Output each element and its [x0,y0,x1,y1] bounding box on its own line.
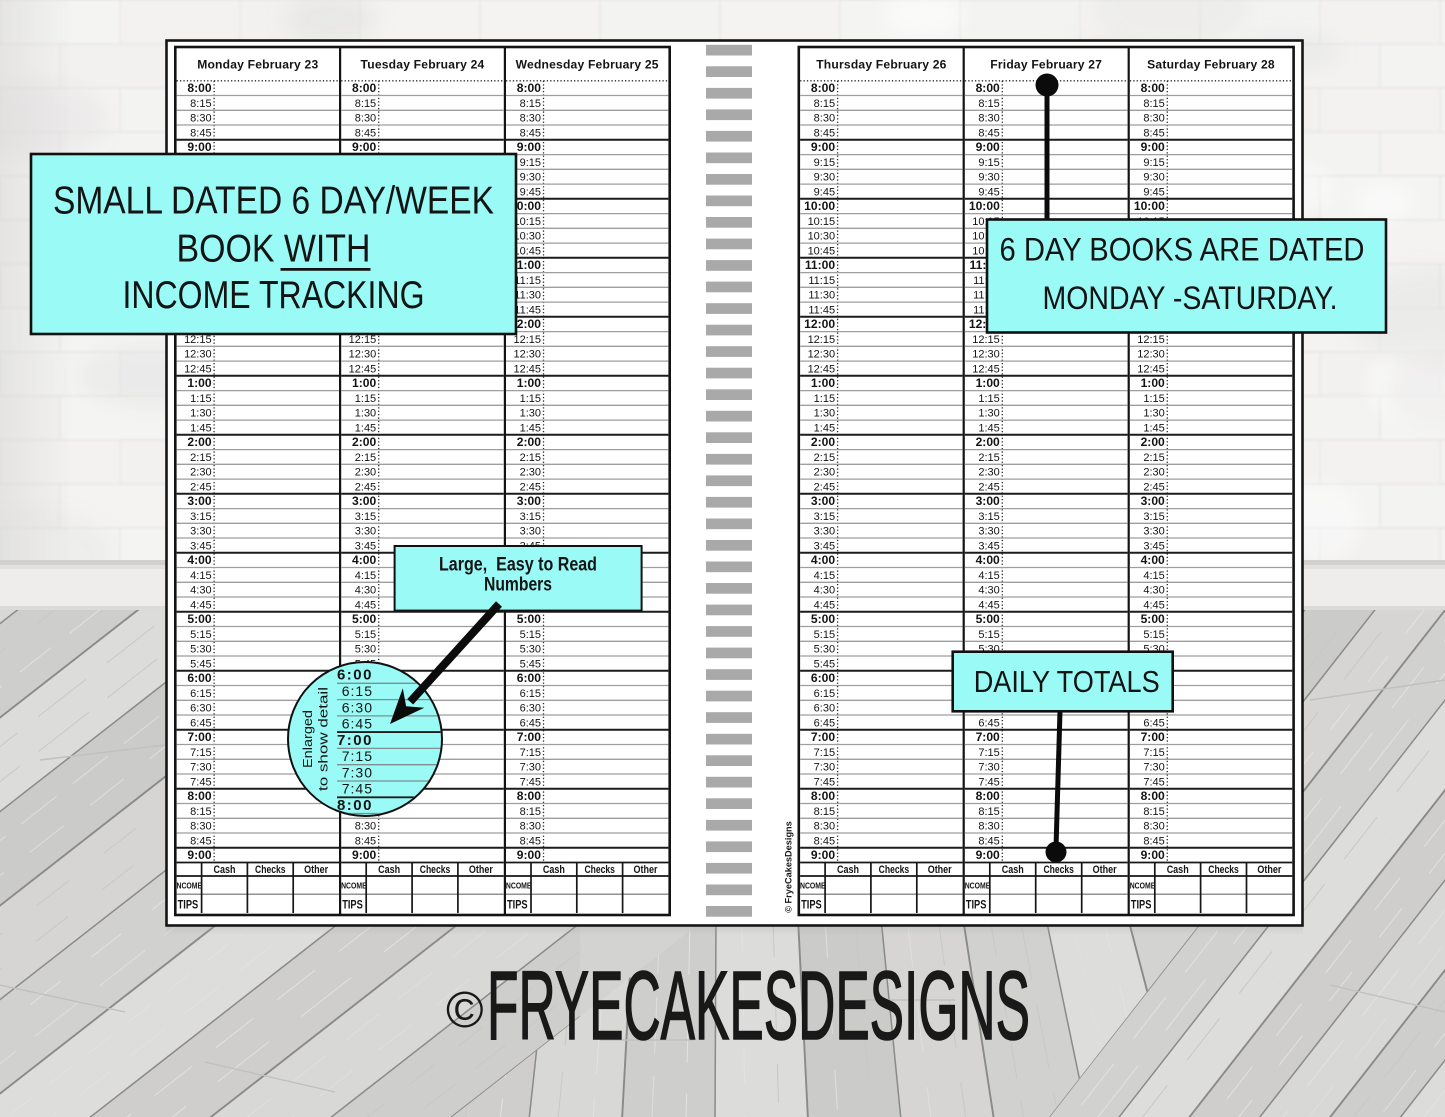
svg-text:2:00: 2:00 [187,435,211,449]
svg-text:10:15: 10:15 [808,216,836,228]
svg-text:4:00: 4:00 [187,553,211,567]
svg-text:1:15: 1:15 [190,393,211,405]
svg-text:8:30: 8:30 [1143,113,1164,125]
svg-text:12:15: 12:15 [972,334,1000,346]
svg-text:7:45: 7:45 [1143,776,1164,788]
svg-text:4:00: 4:00 [352,553,376,567]
svg-text:6:00: 6:00 [187,671,211,685]
svg-text:5:30: 5:30 [355,644,376,656]
svg-text:2:45: 2:45 [1143,481,1164,493]
svg-text:7:00: 7:00 [976,730,1000,744]
svg-text:8:30: 8:30 [814,113,835,125]
svg-text:3:30: 3:30 [520,526,541,538]
svg-text:8:15: 8:15 [814,806,835,818]
svg-text:9:45: 9:45 [978,187,999,199]
svg-text:8:00: 8:00 [976,81,1000,95]
svg-text:TIPS: TIPS [1131,898,1152,911]
svg-text:9:00: 9:00 [352,140,376,154]
svg-text:8:15: 8:15 [355,98,376,110]
svg-text:1:15: 1:15 [355,393,376,405]
svg-text:8:45: 8:45 [355,127,376,139]
svg-text:1:45: 1:45 [978,422,999,434]
svg-text:6:15: 6:15 [342,683,373,699]
svg-text:2:15: 2:15 [355,452,376,464]
svg-text:8:45: 8:45 [355,835,376,847]
svg-text:8:00: 8:00 [1141,789,1165,803]
svg-text:8:00: 8:00 [1141,81,1165,95]
svg-text:9:00: 9:00 [517,140,541,154]
svg-text:9:00: 9:00 [517,848,541,862]
svg-text:5:30: 5:30 [190,644,211,656]
svg-text:7:30: 7:30 [978,762,999,774]
svg-text:1:00: 1:00 [517,376,541,390]
svg-text:9:00: 9:00 [811,140,835,154]
svg-text:3:30: 3:30 [814,526,835,538]
svg-text:8:00: 8:00 [352,81,376,95]
svg-text:2:45: 2:45 [190,481,211,493]
svg-text:Thursday February 26: Thursday February 26 [816,58,946,72]
svg-text:5:45: 5:45 [190,658,211,670]
svg-text:© FryeCakesDesigns: © FryeCakesDesigns [784,821,794,913]
svg-text:2:15: 2:15 [978,452,999,464]
svg-text:3:15: 3:15 [520,511,541,523]
svg-text:5:30: 5:30 [814,644,835,656]
svg-text:8:00: 8:00 [811,81,835,95]
svg-text:7:15: 7:15 [342,748,373,764]
svg-text:9:30: 9:30 [978,172,999,184]
svg-text:11:00: 11:00 [805,258,836,272]
svg-text:4:15: 4:15 [1143,570,1164,582]
svg-text:Friday February 27: Friday February 27 [990,58,1102,72]
svg-text:9:15: 9:15 [814,157,835,169]
svg-text:4:30: 4:30 [978,585,999,597]
svg-text:4:30: 4:30 [1143,585,1164,597]
svg-text:Monday February 23: Monday February 23 [197,58,318,72]
svg-text:9:30: 9:30 [1143,172,1164,184]
svg-text:6:45: 6:45 [1143,717,1164,729]
svg-text:Cash: Cash [543,864,565,876]
svg-text:8:15: 8:15 [814,98,835,110]
svg-text:4:15: 4:15 [814,570,835,582]
svg-text:7:15: 7:15 [190,747,211,759]
svg-text:11:30: 11:30 [808,290,835,302]
svg-text:FRYECAKESDESIGNS: FRYECAKESDESIGNS [487,951,1030,1060]
svg-text:6:15: 6:15 [814,688,835,700]
svg-text:9:15: 9:15 [1143,157,1164,169]
svg-text:2:30: 2:30 [1143,467,1164,479]
svg-text:8:45: 8:45 [190,835,211,847]
svg-text:10:45: 10:45 [808,246,836,258]
svg-text:5:15: 5:15 [814,629,835,641]
svg-text:8:45: 8:45 [978,127,999,139]
svg-text:12:00: 12:00 [804,317,835,331]
svg-text:10:00: 10:00 [1134,199,1165,213]
svg-text:9:15: 9:15 [520,157,541,169]
svg-text:7:00: 7:00 [517,730,541,744]
svg-text:12:45: 12:45 [972,363,1000,375]
svg-text:6:15: 6:15 [190,688,211,700]
svg-text:TIPS: TIPS [178,898,199,911]
svg-text:11:15: 11:15 [514,275,541,287]
svg-text:6:00: 6:00 [517,671,541,685]
svg-text:10:00: 10:00 [969,199,1000,213]
svg-text:1:45: 1:45 [814,422,835,434]
svg-text:8:45: 8:45 [520,127,541,139]
svg-text:9:30: 9:30 [814,172,835,184]
svg-text:Other: Other [304,864,329,876]
svg-text:8:45: 8:45 [190,127,211,139]
svg-text:3:15: 3:15 [978,511,999,523]
svg-text:Large, Easy to Read: Large, Easy to Read [439,554,597,575]
svg-text:11:30: 11:30 [514,290,541,302]
svg-text:3:00: 3:00 [1141,494,1165,508]
svg-text:8:30: 8:30 [355,821,376,833]
svg-text:8:30: 8:30 [814,821,835,833]
svg-text:2:30: 2:30 [814,467,835,479]
svg-text:3:00: 3:00 [352,494,376,508]
svg-text:Other: Other [1257,864,1282,876]
svg-text:MONDAY -SATURDAY.: MONDAY -SATURDAY. [1043,280,1338,316]
svg-text:9:15: 9:15 [978,157,999,169]
svg-text:2:00: 2:00 [352,435,376,449]
svg-text:8:15: 8:15 [520,806,541,818]
svg-text:to show detail: to show detail [316,687,331,791]
svg-text:2:15: 2:15 [520,452,541,464]
svg-text:8:00: 8:00 [187,789,211,803]
svg-text:6:30: 6:30 [814,703,835,715]
svg-text:DAILY TOTALS: DAILY TOTALS [974,664,1160,699]
svg-text:2:30: 2:30 [190,467,211,479]
svg-text:8:45: 8:45 [520,835,541,847]
svg-text:8:00: 8:00 [811,789,835,803]
svg-text:2:30: 2:30 [520,467,541,479]
svg-text:7:45: 7:45 [814,776,835,788]
svg-text:3:00: 3:00 [976,494,1000,508]
svg-text:1:00: 1:00 [811,376,835,390]
svg-text:5:15: 5:15 [355,629,376,641]
svg-text:6 DAY BOOKS ARE DATED: 6 DAY BOOKS ARE DATED [1000,231,1365,267]
svg-text:3:15: 3:15 [355,511,376,523]
svg-text:3:00: 3:00 [187,494,211,508]
svg-text:7:00: 7:00 [1141,730,1165,744]
svg-text:TIPS: TIPS [342,898,363,911]
svg-text:INCOME: INCOME [963,881,991,890]
svg-text:5:15: 5:15 [520,629,541,641]
svg-text:7:45: 7:45 [190,776,211,788]
svg-text:7:15: 7:15 [978,747,999,759]
svg-text:8:15: 8:15 [1143,806,1164,818]
svg-text:12:30: 12:30 [184,349,212,361]
svg-text:Checks: Checks [584,864,615,876]
svg-text:5:00: 5:00 [517,612,541,626]
svg-text:6:30: 6:30 [342,699,373,715]
svg-text:INCOME: INCOME [339,881,367,890]
svg-text:5:00: 5:00 [352,612,376,626]
svg-text:11:45: 11:45 [514,304,541,316]
svg-text:TIPS: TIPS [801,898,822,911]
svg-text:9:00: 9:00 [187,848,211,862]
svg-text:Cash: Cash [1002,864,1024,876]
svg-text:1:30: 1:30 [520,408,541,420]
svg-text:1:00: 1:00 [352,376,376,390]
svg-text:8:30: 8:30 [978,821,999,833]
svg-text:3:45: 3:45 [1143,540,1164,552]
svg-text:3:15: 3:15 [814,511,835,523]
svg-text:8:30: 8:30 [978,113,999,125]
svg-text:4:00: 4:00 [976,553,1000,567]
svg-text:8:30: 8:30 [190,821,211,833]
svg-text:SMALL DATED 6 DAY/WEEK: SMALL DATED 6 DAY/WEEK [53,180,494,223]
svg-text:12:45: 12:45 [513,363,541,375]
svg-text:3:45: 3:45 [978,540,999,552]
svg-text:9:45: 9:45 [814,187,835,199]
svg-text:12:45: 12:45 [808,363,836,375]
svg-text:2:00: 2:00 [811,435,835,449]
svg-text:3:45: 3:45 [814,540,835,552]
svg-text:Other: Other [634,864,659,876]
svg-text:Cash: Cash [378,864,400,876]
svg-text:8:00: 8:00 [517,81,541,95]
svg-text:Wednesday February 25: Wednesday February 25 [516,58,659,72]
svg-text:2:15: 2:15 [814,452,835,464]
svg-text:4:45: 4:45 [1143,599,1164,611]
svg-text:7:45: 7:45 [520,776,541,788]
svg-text:8:45: 8:45 [1143,835,1164,847]
svg-text:3:00: 3:00 [811,494,835,508]
svg-text:7:30: 7:30 [190,762,211,774]
svg-text:Other: Other [928,864,953,876]
svg-text:9:00: 9:00 [352,848,376,862]
svg-text:12:45: 12:45 [1137,363,1165,375]
svg-text:8:45: 8:45 [978,835,999,847]
svg-text:5:15: 5:15 [190,629,211,641]
svg-text:Checks: Checks [1208,864,1239,876]
svg-text:6:45: 6:45 [342,716,373,732]
svg-text:6:30: 6:30 [520,703,541,715]
svg-text:8:00: 8:00 [187,81,211,95]
svg-text:8:30: 8:30 [520,113,541,125]
svg-text:3:45: 3:45 [355,540,376,552]
svg-text:8:15: 8:15 [190,98,211,110]
svg-text:5:45: 5:45 [520,658,541,670]
svg-text:8:00: 8:00 [976,789,1000,803]
svg-text:11:15: 11:15 [808,275,835,287]
svg-text:7:00: 7:00 [337,732,373,749]
svg-text:INCOME: INCOME [175,881,203,890]
svg-text:5:45: 5:45 [814,658,835,670]
svg-text:9:45: 9:45 [1143,187,1164,199]
svg-text:7:30: 7:30 [814,762,835,774]
svg-text:4:15: 4:15 [190,570,211,582]
svg-text:5:15: 5:15 [978,629,999,641]
svg-text:9:00: 9:00 [976,140,1000,154]
svg-text:2:15: 2:15 [190,452,211,464]
svg-text:8:45: 8:45 [814,835,835,847]
svg-text:1:45: 1:45 [520,422,541,434]
svg-text:1:30: 1:30 [355,408,376,420]
svg-text:12:45: 12:45 [349,363,377,375]
svg-text:12:15: 12:15 [808,334,836,346]
svg-text:8:30: 8:30 [190,113,211,125]
svg-text:7:30: 7:30 [342,764,373,780]
svg-text:1:45: 1:45 [355,422,376,434]
svg-text:TIPS: TIPS [507,898,528,911]
svg-text:INCOME: INCOME [1128,881,1156,890]
svg-text:7:45: 7:45 [978,776,999,788]
svg-text:8:30: 8:30 [355,113,376,125]
svg-text:6:30: 6:30 [190,703,211,715]
svg-text:8:00: 8:00 [337,797,373,814]
svg-text:3:15: 3:15 [190,511,211,523]
svg-text:7:15: 7:15 [1143,747,1164,759]
svg-text:5:00: 5:00 [187,612,211,626]
svg-text:1:00: 1:00 [187,376,211,390]
svg-text:12:30: 12:30 [513,349,541,361]
svg-text:7:15: 7:15 [814,747,835,759]
svg-text:1:00: 1:00 [976,376,1000,390]
svg-text:9:45: 9:45 [520,187,541,199]
svg-text:1:30: 1:30 [814,408,835,420]
svg-text:1:30: 1:30 [1143,408,1164,420]
svg-text:8:30: 8:30 [1143,821,1164,833]
svg-text:12:30: 12:30 [808,349,836,361]
svg-text:12:15: 12:15 [1137,334,1165,346]
svg-text:6:45: 6:45 [814,717,835,729]
svg-text:BOOK WITH: BOOK WITH [177,228,371,271]
svg-text:1:15: 1:15 [520,393,541,405]
svg-text:12:30: 12:30 [972,349,1000,361]
svg-text:1:15: 1:15 [1143,393,1164,405]
svg-text:12:30: 12:30 [1137,349,1165,361]
svg-text:4:00: 4:00 [811,553,835,567]
svg-text:8:15: 8:15 [978,806,999,818]
svg-text:12:45: 12:45 [184,363,212,375]
svg-text:3:15: 3:15 [1143,511,1164,523]
svg-text:6:45: 6:45 [978,717,999,729]
svg-text:10:15: 10:15 [513,216,541,228]
svg-text:5:00: 5:00 [1141,612,1165,626]
svg-text:5:15: 5:15 [1143,629,1164,641]
svg-text:Checks: Checks [420,864,451,876]
svg-text:7:30: 7:30 [1143,762,1164,774]
svg-text:5:00: 5:00 [811,612,835,626]
svg-text:9:00: 9:00 [976,848,1000,862]
svg-text:4:45: 4:45 [355,599,376,611]
svg-text:TIPS: TIPS [966,898,987,911]
svg-text:INCOME: INCOME [504,881,532,890]
svg-text:8:45: 8:45 [1143,127,1164,139]
svg-text:8:15: 8:15 [1143,98,1164,110]
svg-text:3:30: 3:30 [978,526,999,538]
svg-text:7:15: 7:15 [520,747,541,759]
svg-text:12:15: 12:15 [513,334,541,346]
svg-text:10:00: 10:00 [804,199,835,213]
svg-text:5:00: 5:00 [976,612,1000,626]
svg-text:12:30: 12:30 [349,349,377,361]
svg-text:4:30: 4:30 [814,585,835,597]
svg-text:2:00: 2:00 [1141,435,1165,449]
svg-text:7:00: 7:00 [187,730,211,744]
svg-text:Tuesday February 24: Tuesday February 24 [361,58,485,72]
svg-text:5:30: 5:30 [520,644,541,656]
svg-text:1:15: 1:15 [978,393,999,405]
svg-text:2:45: 2:45 [355,481,376,493]
svg-text:10:30: 10:30 [808,231,836,243]
svg-text:6:00: 6:00 [811,671,835,685]
svg-text:1:45: 1:45 [190,422,211,434]
svg-text:4:45: 4:45 [190,599,211,611]
svg-text:9:30: 9:30 [520,172,541,184]
svg-text:6:45: 6:45 [520,717,541,729]
svg-text:2:45: 2:45 [814,481,835,493]
svg-text:12:15: 12:15 [349,334,377,346]
svg-text:4:30: 4:30 [355,585,376,597]
svg-text:4:45: 4:45 [978,599,999,611]
svg-text:3:00: 3:00 [517,494,541,508]
svg-text:8:15: 8:15 [520,98,541,110]
svg-text:6:45: 6:45 [190,717,211,729]
svg-text:10:30: 10:30 [513,231,541,243]
svg-text:Checks: Checks [255,864,286,876]
svg-text:8:45: 8:45 [814,127,835,139]
svg-text:Other: Other [1093,864,1118,876]
svg-text:Checks: Checks [1043,864,1074,876]
svg-text:©: © [446,981,484,1038]
svg-text:2:00: 2:00 [517,435,541,449]
svg-text:Other: Other [469,864,494,876]
svg-text:2:30: 2:30 [355,467,376,479]
svg-text:1:30: 1:30 [978,408,999,420]
svg-text:1:45: 1:45 [1143,422,1164,434]
svg-text:4:30: 4:30 [190,585,211,597]
svg-text:3:30: 3:30 [1143,526,1164,538]
svg-text:7:45: 7:45 [342,781,373,797]
svg-text:4:15: 4:15 [978,570,999,582]
svg-text:3:30: 3:30 [190,526,211,538]
svg-text:9:00: 9:00 [187,140,211,154]
svg-text:6:15: 6:15 [520,688,541,700]
svg-text:2:00: 2:00 [976,435,1000,449]
svg-text:8:15: 8:15 [190,806,211,818]
svg-text:12:15: 12:15 [184,334,212,346]
svg-text:4:15: 4:15 [355,570,376,582]
svg-text:1:15: 1:15 [814,393,835,405]
svg-text:8:30: 8:30 [520,821,541,833]
svg-text:11:45: 11:45 [808,304,835,316]
svg-text:2:15: 2:15 [1143,452,1164,464]
svg-text:3:30: 3:30 [355,526,376,538]
svg-text:1:30: 1:30 [190,408,211,420]
svg-text:2:45: 2:45 [520,481,541,493]
svg-text:9:00: 9:00 [811,848,835,862]
svg-text:4:45: 4:45 [814,599,835,611]
svg-text:2:45: 2:45 [978,481,999,493]
svg-text:7:30: 7:30 [520,762,541,774]
svg-text:Saturday February 28: Saturday February 28 [1147,58,1275,72]
svg-text:Cash: Cash [1167,864,1189,876]
svg-text:Checks: Checks [879,864,910,876]
svg-text:3:45: 3:45 [190,540,211,552]
svg-text:Cash: Cash [837,864,859,876]
svg-text:4:00: 4:00 [1141,553,1165,567]
svg-text:INCOME TRACKING: INCOME TRACKING [123,274,425,317]
svg-text:8:15: 8:15 [978,98,999,110]
svg-text:1:00: 1:00 [1141,376,1165,390]
svg-text:7:00: 7:00 [811,730,835,744]
svg-text:INCOME: INCOME [798,881,826,890]
svg-text:Cash: Cash [214,864,236,876]
svg-text:Numbers: Numbers [484,575,552,596]
